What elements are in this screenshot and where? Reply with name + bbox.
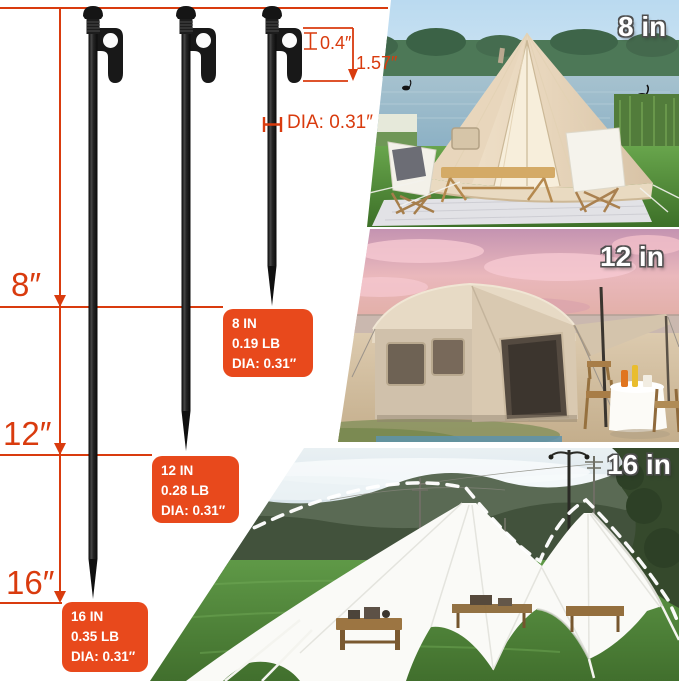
shaft-diameter-label: DIA: 0.31″ xyxy=(287,113,373,132)
photo-label-16in: 16 in xyxy=(607,451,671,479)
spec-length: 16 IN xyxy=(71,607,142,627)
spec-diameter: DIA: 0.31″ xyxy=(232,354,307,374)
stake-12in-illustration xyxy=(176,6,216,451)
hook-width-label: 0.4″ xyxy=(320,34,351,52)
spec-box-16in: 16 IN 0.35 LB DIA: 0.31″ xyxy=(62,602,148,672)
photo-label-12in: 12 in xyxy=(600,243,664,271)
spec-weight: 0.28 LB xyxy=(161,481,233,501)
stake-length-label-16in: 16″ xyxy=(6,566,54,599)
stake-length-label-12in: 12″ xyxy=(3,417,51,450)
spec-box-12in: 12 IN 0.28 LB DIA: 0.31″ xyxy=(152,456,239,523)
product-image: 8″ 12″ 16″ 0.4″ 1.57″ DIA: 0.31″ 8 IN 0.… xyxy=(0,0,679,681)
spec-weight: 0.19 LB xyxy=(232,334,307,354)
photo-label-8in: 8 in xyxy=(618,13,666,41)
spec-diameter: DIA: 0.31″ xyxy=(71,647,142,667)
spec-box-8in: 8 IN 0.19 LB DIA: 0.31″ xyxy=(223,309,313,377)
spec-length: 8 IN xyxy=(232,314,307,334)
spec-length: 12 IN xyxy=(161,461,233,481)
stake-length-label-8in: 8″ xyxy=(11,268,41,301)
stake-16in-illustration xyxy=(83,6,123,599)
hook-height-label: 1.57″ xyxy=(356,54,397,72)
stake-dimension-diagram xyxy=(0,0,679,681)
stake-8in-illustration xyxy=(262,6,302,306)
spec-diameter: DIA: 0.31″ xyxy=(161,501,233,521)
spec-weight: 0.35 LB xyxy=(71,627,142,647)
